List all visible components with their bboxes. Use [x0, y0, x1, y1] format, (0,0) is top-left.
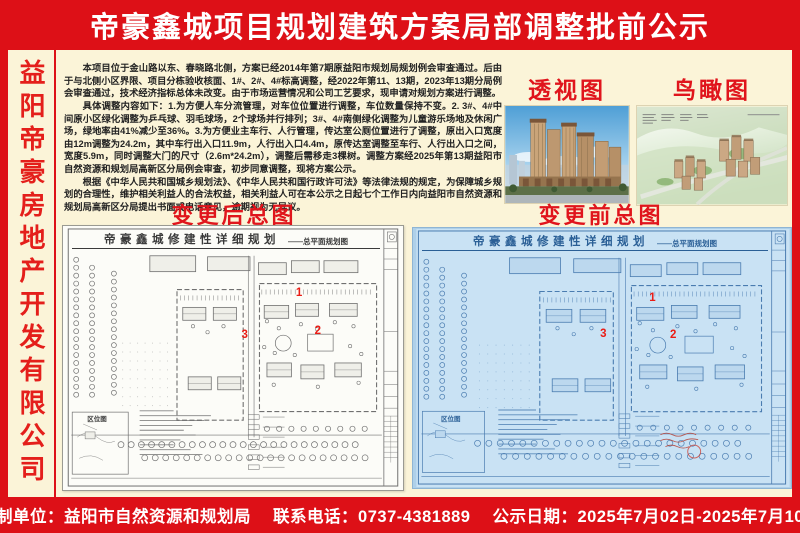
title-banner: 帝豪鑫城项目规划建筑方案局部调整批前公示 [0, 0, 800, 50]
adjustment-marker-2: 2 [315, 325, 321, 337]
perspective-column: 透视图 [504, 78, 630, 206]
aerial-column: 鸟瞰图 [636, 78, 788, 206]
before-plan-titlebar: 帝豪鑫城修建性详细规划 ——总平面规划图 [422, 232, 768, 251]
adjustment-marker-1: 1 [296, 287, 302, 299]
frame-left [0, 50, 8, 497]
footer-banner: 监制单位：益阳市自然资源和规划局 联系电话：0737-4381889 公示日期：… [0, 497, 800, 533]
notice-paragraph-2: 具体调整内容如下：1.为方便人车分流管理，对车位位置进行调整，车位数量保持不变。… [64, 100, 502, 176]
developer-name: 益阳帝豪房地产开发有限公司 [18, 59, 44, 488]
footer-phone: 联系电话：0737-4381889 [273, 503, 470, 527]
developer-sidebar: 益阳帝豪房地产开发有限公司 [8, 50, 56, 497]
main-content: 本项目位于金山路以东、春晓路北侧，方案已经2014年第7期原益阳市规划局规划例会… [58, 50, 792, 497]
before-plan-drawing [413, 228, 791, 488]
after-plan-titlebar: 帝豪鑫城修建性详细规划 ——总平面规划图 [72, 230, 380, 249]
adjustment-marker-1: 1 [649, 292, 655, 304]
perspective-label: 透视图 [528, 78, 606, 105]
adjustment-marker-3: 3 [242, 329, 248, 341]
aerial-image [636, 105, 788, 206]
after-plan-subtitle: ——总平面规划图 [288, 236, 348, 247]
frame-right [792, 50, 800, 497]
footer-dates: 公示日期：2025年7月02日-2025年7月10日 [492, 503, 800, 527]
site-plan-after: 帝豪鑫城修建性详细规划 ——总平面规划图 区位图 1 2 3 [62, 225, 404, 491]
notice-paragraph-1: 本项目位于金山路以东、春晓路北侧，方案已经2014年第7期原益阳市规划局规划例会… [64, 62, 502, 100]
after-plan-title: 帝豪鑫城修建性详细规划 [104, 231, 280, 247]
before-plan-subtitle: ——总平面规划图 [657, 238, 717, 249]
before-location-map-label: 区位图 [426, 413, 475, 423]
perspective-image [504, 105, 630, 204]
site-plans: 帝豪鑫城修建性详细规划 ——总平面规划图 区位图 1 2 3 帝豪鑫城修建性详细… [58, 225, 792, 497]
aerial-label: 鸟瞰图 [673, 78, 751, 105]
after-plan-drawing [63, 226, 403, 490]
notice-body: 本项目位于金山路以东、春晓路北侧，方案已经2014年第7期原益阳市规划局规划例会… [64, 62, 502, 214]
footer-supervisor: 监制单位：益阳市自然资源和规划局 [0, 503, 251, 527]
notice-poster: 帝豪鑫城项目规划建筑方案局部调整批前公示 益阳帝豪房地产开发有限公司 本项目位于… [0, 0, 800, 533]
after-location-map-label: 区位图 [75, 413, 119, 423]
site-plan-before: 帝豪鑫城修建性详细规划 ——总平面规划图 区位图 1 2 3 [412, 227, 792, 489]
page-title: 帝豪鑫城项目规划建筑方案局部调整批前公示 [90, 4, 710, 46]
render-images: 透视图 [504, 78, 788, 206]
adjustment-marker-2: 2 [670, 329, 676, 341]
before-plan-title: 帝豪鑫城修建性详细规划 [473, 233, 649, 249]
adjustment-marker-3: 3 [600, 328, 606, 340]
